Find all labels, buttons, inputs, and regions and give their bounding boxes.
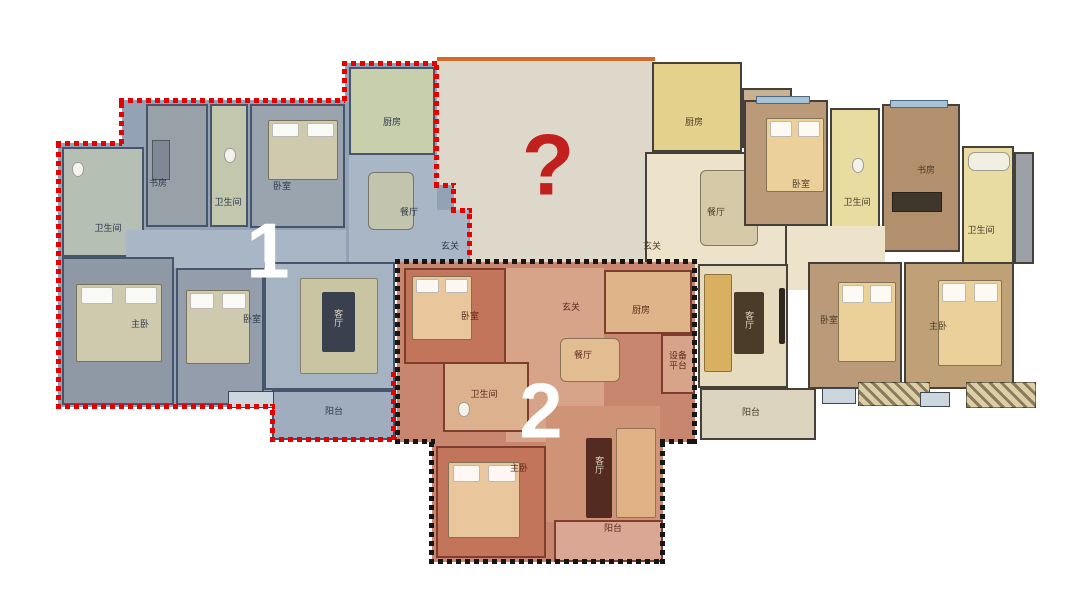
unit2-kitchen-label: 厨房 <box>632 305 650 315</box>
unit2-bedroom-label: 卧室 <box>461 311 479 321</box>
unit2-equipment-label: 设备平台 <box>667 351 689 372</box>
unit2-dining-label: 餐厅 <box>574 350 592 360</box>
unit1-outline-segment <box>342 61 437 66</box>
unit1-outline-segment <box>270 437 397 442</box>
unit2-living-rug <box>586 438 612 518</box>
unit1-outline-segment <box>119 98 345 103</box>
unit1-outline-segment <box>56 141 61 409</box>
unit1-outline-segment <box>342 61 347 101</box>
unit2-bed <box>412 276 472 340</box>
unit2-master-bed <box>448 462 520 538</box>
unit2-foyer-label: 玄关 <box>562 302 580 312</box>
unit2-outline-segment <box>395 259 400 444</box>
unit1-outline-segment <box>467 208 472 264</box>
unit2-bath-label: 卫生间 <box>470 389 497 399</box>
unit2-toilet <box>458 402 470 417</box>
unit2-balcony-label: 阳台 <box>604 523 622 533</box>
unit2-living-label: 客厅 <box>594 456 604 474</box>
unit-2[interactable]: 卧室 玄关 厨房 餐厅 设备平台 卫生间 主卧 客厅 阳台 <box>0 0 1079 611</box>
unit2-kitchen-room <box>604 270 692 334</box>
unit1-number[interactable]: 1 <box>246 206 289 297</box>
floorplan-puzzle: ? 厨房 餐厅 玄关 卧室 卫生间 书房 <box>0 0 1079 611</box>
unit1-outline-segment <box>119 98 124 144</box>
unit2-sofa <box>616 428 656 518</box>
unit1-outline-segment <box>56 141 122 146</box>
unit1-outline-segment <box>434 61 439 187</box>
unit2-outline-segment <box>660 439 665 564</box>
unit2-number[interactable]: 2 <box>519 366 562 457</box>
unit2-outline-segment <box>429 439 434 564</box>
unit2-outline-segment <box>429 559 665 564</box>
unit2-outline-segment <box>660 439 697 444</box>
unit2-master-label: 主卧 <box>510 463 528 473</box>
question-mark: ? <box>522 117 575 216</box>
unit2-outline-segment <box>395 259 697 264</box>
unit2-outline-segment <box>692 259 697 444</box>
unit1-outline-segment <box>56 404 275 409</box>
